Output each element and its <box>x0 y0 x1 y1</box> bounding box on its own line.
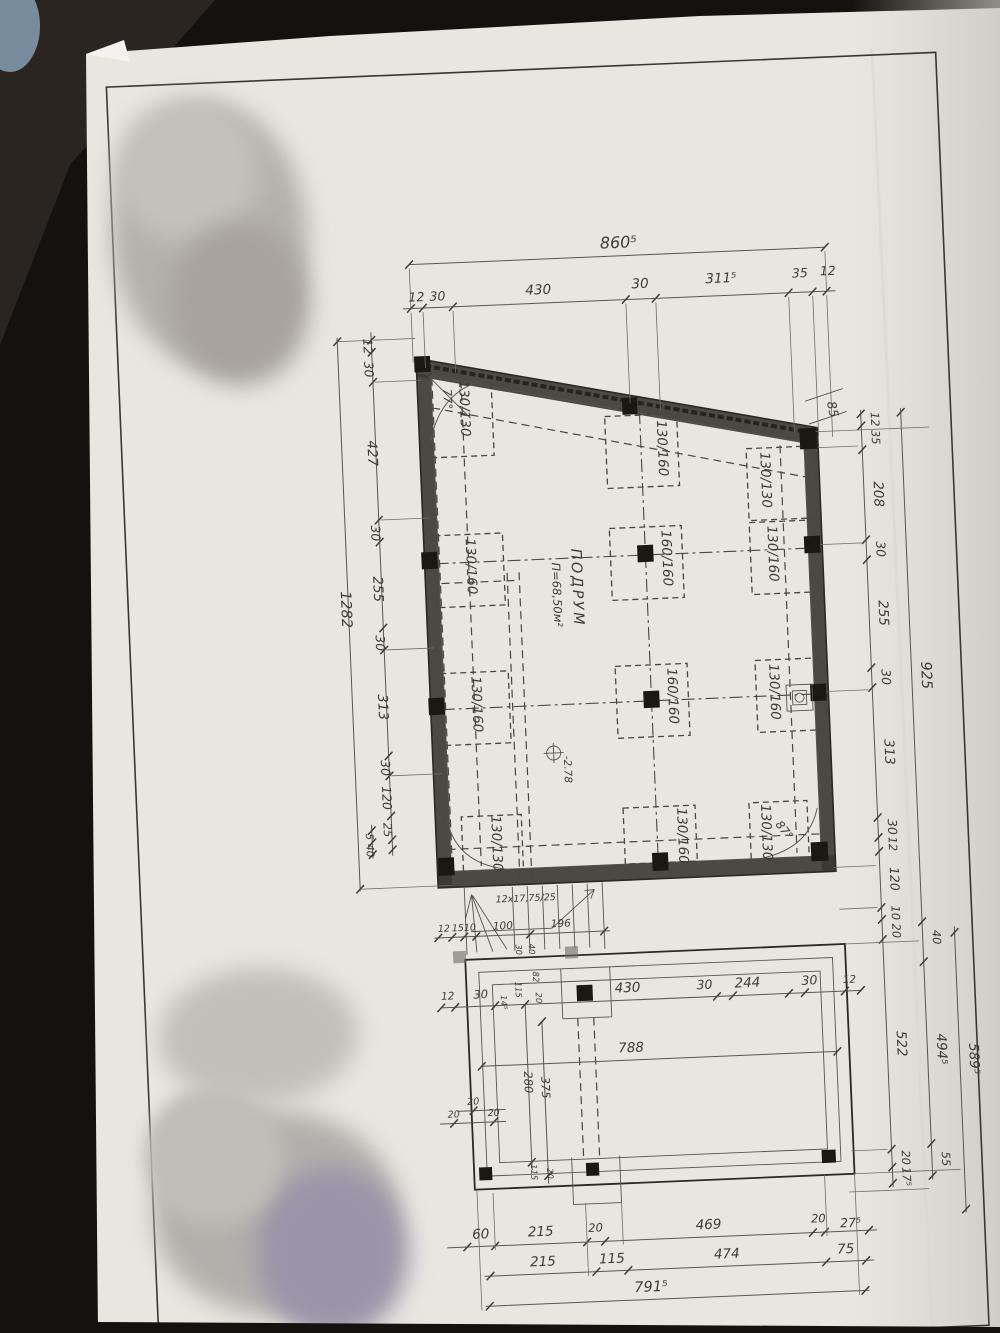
dim: 494⁵ <box>933 1033 950 1065</box>
dim: 115 <box>599 1250 625 1267</box>
dim: 27⁵ <box>840 1215 862 1231</box>
dim: 255 <box>369 576 386 602</box>
dim-small: 30 <box>513 944 523 955</box>
dim-small: 40 <box>526 944 536 955</box>
dim-small: 20 <box>487 1108 500 1119</box>
dim-total: 791⁵ <box>634 1279 668 1296</box>
dim: 120 <box>379 786 395 811</box>
dim: 313 <box>374 694 391 720</box>
dim: 75 <box>837 1241 855 1258</box>
floor-plan-photo: ПОДРУМ П=68,50м² -2.78 77° 87° 130/130 1… <box>0 0 1000 1333</box>
dim: 30 <box>373 635 389 652</box>
footing-label: 130/160 <box>462 538 480 595</box>
dim: 430 <box>614 980 640 997</box>
dim-total: 589⁵ <box>965 1043 982 1075</box>
room-area: П=68,50м² <box>549 562 566 627</box>
footing-label: 130/130 <box>756 452 774 509</box>
dim: 40 <box>363 844 376 858</box>
stair-dim: 196 <box>551 917 572 930</box>
dim: 35 <box>868 430 883 445</box>
dim: 20 <box>889 923 904 938</box>
footing-label: 130/160 <box>653 420 671 477</box>
dim: 30 <box>429 288 446 304</box>
footing-label: 130/160 <box>763 525 781 582</box>
dim-small: 115 <box>512 981 523 998</box>
dim: 208 <box>870 481 887 507</box>
dim-total: 1282 <box>337 591 355 629</box>
dim: 12 <box>441 990 455 1003</box>
dim: 120 <box>887 867 903 892</box>
dim: 12 <box>885 836 900 851</box>
dim: 30 <box>873 541 889 558</box>
dim: 17⁵ <box>899 1167 914 1187</box>
dim: 30 <box>361 361 377 378</box>
dim: 375 <box>538 1076 553 1099</box>
dim: 30 <box>801 972 818 988</box>
level-value: -2.78 <box>561 756 574 784</box>
dim: 215 <box>530 1253 556 1270</box>
footing-label: 130/130 <box>757 804 775 861</box>
dim: 12 <box>408 289 425 305</box>
dim: 20 <box>811 1211 826 1226</box>
dim: 30 <box>878 669 894 686</box>
dim: 12 <box>868 412 883 427</box>
dim: 469 <box>695 1216 721 1233</box>
dim: 30 <box>473 987 488 1002</box>
dim: 10 <box>888 905 903 920</box>
dim: 430 <box>525 282 551 299</box>
dim-total: 925 <box>917 661 934 689</box>
dim: 30 <box>368 525 384 542</box>
footing-label: 130/130 <box>455 380 473 437</box>
dim: 255 <box>875 600 892 626</box>
dim: 244 <box>734 975 760 992</box>
pier-column <box>576 985 593 1002</box>
dim-small: 20 <box>533 992 543 1003</box>
dim-small: 20 <box>467 1096 480 1107</box>
dim-small: 14⁵ <box>498 995 509 1010</box>
stair-dim: 15 <box>452 923 465 934</box>
dim: 12 <box>819 263 836 279</box>
dim-small: 115 <box>528 1164 539 1181</box>
dim-total: 860⁵ <box>599 232 637 253</box>
dim: 12 <box>360 338 376 355</box>
footing-label: 130/160 <box>765 663 783 720</box>
dim: 60 <box>472 1226 490 1243</box>
footing-label: 160/160 <box>663 668 681 725</box>
dim: 215 <box>527 1223 553 1240</box>
dim-span: 788 <box>618 1039 644 1056</box>
dim: 12 <box>842 974 856 987</box>
dim: 35 <box>792 265 809 281</box>
dim: 313 <box>880 739 897 765</box>
dim-small: 82 <box>530 971 540 982</box>
stair-dim: 12 <box>438 924 451 935</box>
footing-label: 130/160 <box>673 807 691 864</box>
dim: 522 <box>893 1030 910 1056</box>
footing-label: 130/130 <box>487 815 505 872</box>
dim: 20 <box>899 1150 914 1165</box>
room-name: ПОДРУМ <box>567 548 586 627</box>
dim: 311⁵ <box>705 270 737 287</box>
dim: 30 <box>631 276 649 293</box>
dim: 55 <box>939 1151 954 1166</box>
dim: 30 <box>696 977 713 993</box>
dim: 280 <box>521 1071 536 1094</box>
dim: 30 <box>378 760 394 777</box>
dim: 40 <box>929 930 944 945</box>
footing-label: 130/160 <box>467 676 485 733</box>
dim: 5 <box>363 833 375 840</box>
dim: 20 <box>588 1220 603 1235</box>
dim: 474 <box>714 1246 740 1263</box>
dim: 30 <box>885 819 901 836</box>
dim-small: 20 <box>447 1109 460 1120</box>
photographed-floor-plan: ПОДРУМ П=68,50м² -2.78 77° 87° 130/130 1… <box>0 0 1000 1333</box>
angle-top-left: 77° <box>440 389 455 410</box>
dim-small: 20 <box>544 1168 554 1179</box>
dim: 427 <box>363 440 380 467</box>
stair-dim: 10 <box>464 922 477 933</box>
stair-dim: 100 <box>493 920 514 933</box>
footing-label: 160/160 <box>657 530 675 587</box>
dim: 25 <box>380 822 395 837</box>
